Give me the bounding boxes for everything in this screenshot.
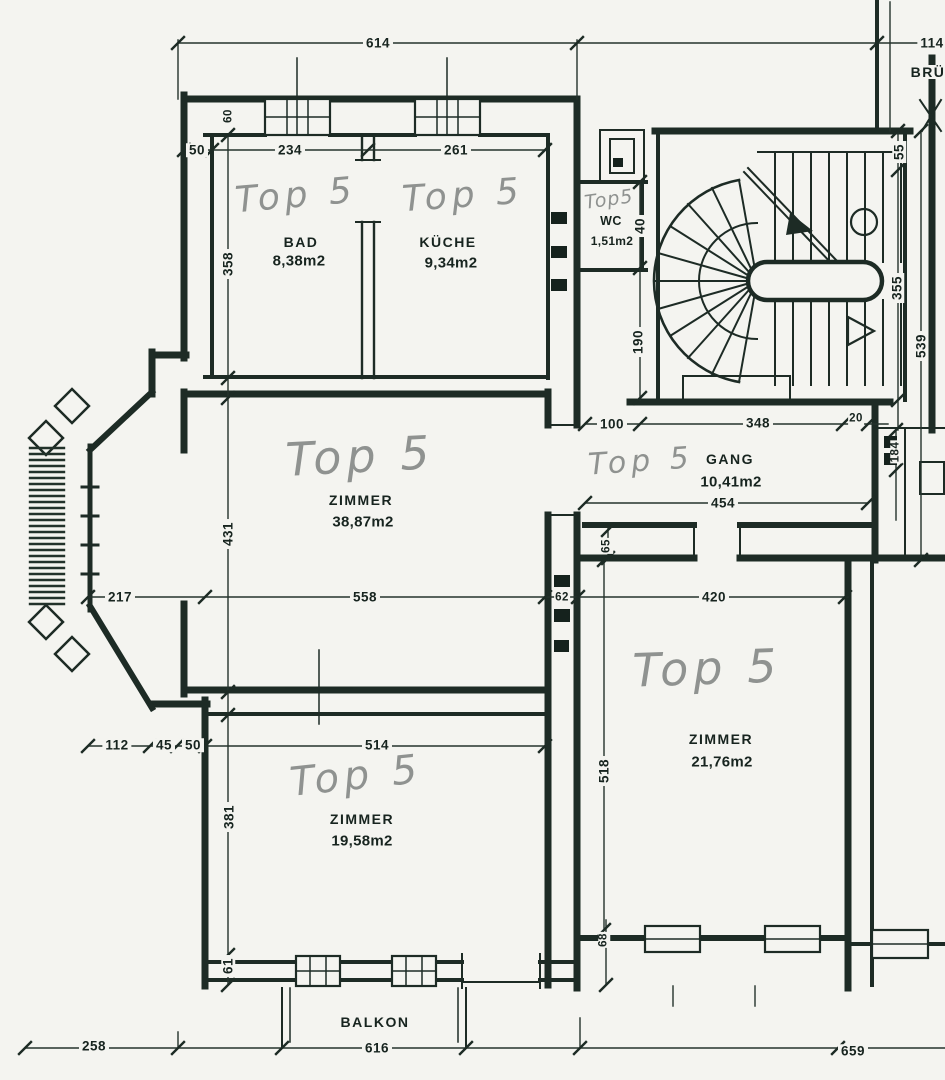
label-plan-dimensions-right_room_height: 518 (597, 756, 611, 786)
label-plan-dimensions-top_row-1: 234 (275, 143, 305, 157)
label-plan-dimensions-top_row-2: 261 (441, 143, 471, 157)
label-plan-rooms-6-handwritten: Top 5 (288, 749, 424, 803)
label-plan-dimensions-bottom_row-0: 258 (79, 1039, 109, 1053)
label-plan-rooms-2-name: WC (598, 215, 624, 228)
label-plan-rooms-4-name: ZIMMER (327, 493, 395, 507)
label-plan-dimensions-bottom_row-1: 616 (362, 1041, 392, 1055)
label-plan-dimensions-mid_row-1: 558 (350, 590, 380, 604)
label-plan-dimensions-bottom_row-2: 659 (838, 1044, 868, 1058)
label-plan-rooms-0-handwritten: Top 5 (234, 173, 358, 219)
label-plan-rooms-5-name: ZIMMER (687, 732, 755, 746)
label-plan-dimensions-mid_row-0: 217 (105, 590, 135, 604)
label-plan-dimensions-top_total: 614 (363, 36, 393, 50)
label-plan-rooms-3-name: GANG (704, 452, 756, 466)
label-plan-dimensions-top_right_cut: 114 (917, 36, 945, 50)
label-plan-rooms-6-name: ZIMMER (328, 812, 396, 826)
plan-labels: 6141145023426160358431381614019055355539… (0, 0, 945, 1080)
label-plan-rooms-5-handwritten: Top 5 (632, 642, 782, 693)
label-plan-dimensions-wc_col-0: 40 (633, 215, 647, 237)
label-plan-dimensions-mid_row-3: 420 (699, 590, 729, 604)
label-plan-dimensions-wc_col-1: 190 (631, 327, 645, 357)
label-plan-dimensions-gang_top-1: 348 (743, 416, 773, 430)
label-plan-dimensions-left_col-1: 431 (221, 519, 235, 549)
label-plan-rooms-4-area: 38,87m2 (330, 515, 395, 530)
label-plan-dimensions-gang_width: 454 (708, 496, 738, 510)
label-plan-rooms-3-area: 10,41m2 (698, 475, 763, 490)
label-plan-dimensions-gang_top-2: 20 (848, 413, 864, 425)
label-plan-dimensions-mid_row-2: 62 (554, 592, 570, 604)
label-plan-rooms-5-area: 21,76m2 (689, 755, 754, 770)
label-plan-dimensions-lower_row-0: 112 (102, 738, 131, 752)
label-plan-dimensions-window_pier: 60 (223, 108, 235, 124)
label-plan-dimensions-mid_wall: 65 (601, 538, 613, 554)
label-plan-dimensions-lower_wall: 68 (598, 932, 610, 948)
label-plan-rooms-3-handwritten: Top 5 (587, 443, 694, 480)
label-plan-rooms-4-handwritten: Top 5 (285, 429, 436, 483)
label-plan-dimensions-left_col-2: 381 (222, 802, 236, 832)
label-plan-rooms-6-area: 19,58m2 (329, 834, 394, 849)
label-plan-rooms-0-name: BAD (282, 235, 321, 249)
label-plan-rooms-1-area: 9,34m2 (423, 256, 480, 271)
label-plan-dimensions-lower_row-1: 45 (153, 738, 175, 752)
label-plan-dimensions-lower_row-2: 50 (182, 738, 204, 752)
label-plan-dimensions-top_row-0: 50 (186, 143, 208, 157)
label-plan-dimensions-gang_right_col: 184 (890, 441, 902, 464)
label-plan-rooms-7-name: BALKON (339, 1015, 412, 1029)
label-plan-rooms-2-handwritten: Top5 (583, 187, 634, 213)
label-plan-rooms-2-area: 1,51m2 (589, 235, 636, 247)
label-plan-dimensions-stair_col-1: 355 (890, 273, 904, 303)
label-plan-rooms-1-name: KÜCHE (417, 235, 478, 249)
label-plan-partial_labels-top_right: BRÜ (909, 65, 945, 79)
label-plan-rooms-0-area: 8,38m2 (271, 254, 328, 269)
label-plan-rooms-1-handwritten: Top 5 (401, 174, 525, 218)
label-plan-dimensions-left_col-0: 358 (221, 249, 235, 279)
label-plan-dimensions-left_col-3: 61 (221, 955, 235, 977)
label-plan-dimensions-stair_col-2: 539 (914, 331, 928, 361)
label-plan-dimensions-stair_col-0: 55 (892, 141, 906, 163)
label-plan-dimensions-gang_top-0: 100 (597, 417, 627, 431)
floor-plan-scan: 6141145023426160358431381614019055355539… (0, 0, 945, 1080)
